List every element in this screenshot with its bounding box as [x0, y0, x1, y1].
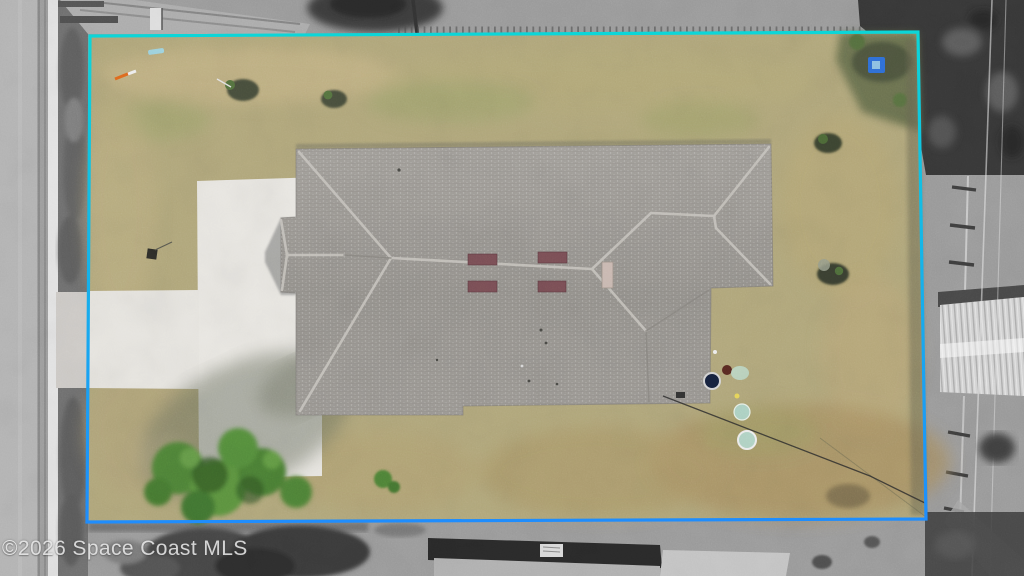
- film-grain-coarse: [0, 0, 1024, 576]
- mls-watermark: ©2026 Space Coast MLS: [2, 537, 248, 561]
- aerial-photo: ©2026 Space Coast MLS: [0, 0, 1024, 576]
